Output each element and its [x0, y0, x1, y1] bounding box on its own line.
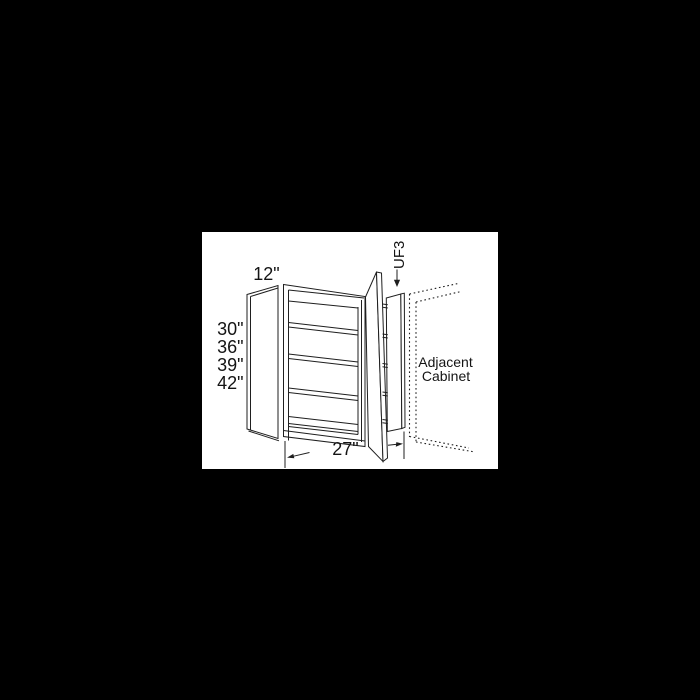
- width-arrow-right-head: [396, 442, 403, 447]
- top-depth-label: 12": [253, 264, 279, 284]
- height-option-36: 36": [217, 337, 243, 357]
- uf3-pointer-arrow-head: [394, 280, 400, 287]
- cabinet-diagram: 12" 30" 36" 39" 42" 27" UF3 Adjacent Cab…: [202, 232, 498, 469]
- blind-filler-panel: [386, 293, 405, 431]
- width-arrow-right: [388, 444, 397, 445]
- diagram-stage: 12" 30" 36" 39" 42" 27" UF3 Adjacent Cab…: [0, 0, 700, 700]
- part-code-label: UF3: [391, 241, 408, 269]
- adjacent-cabinet-label-line2: Cabinet: [422, 368, 470, 384]
- cabinet-face-frame: [284, 285, 366, 447]
- height-option-39: 39": [217, 355, 243, 375]
- height-option-30: 30": [217, 319, 243, 339]
- bottom-width-label: 27": [332, 439, 358, 459]
- width-arrow-left-head: [287, 454, 294, 458]
- height-option-42: 42": [217, 373, 243, 393]
- diagram-panel: 12" 30" 36" 39" 42" 27" UF3 Adjacent Cab…: [202, 232, 498, 469]
- cabinet-side-panel: [247, 286, 279, 441]
